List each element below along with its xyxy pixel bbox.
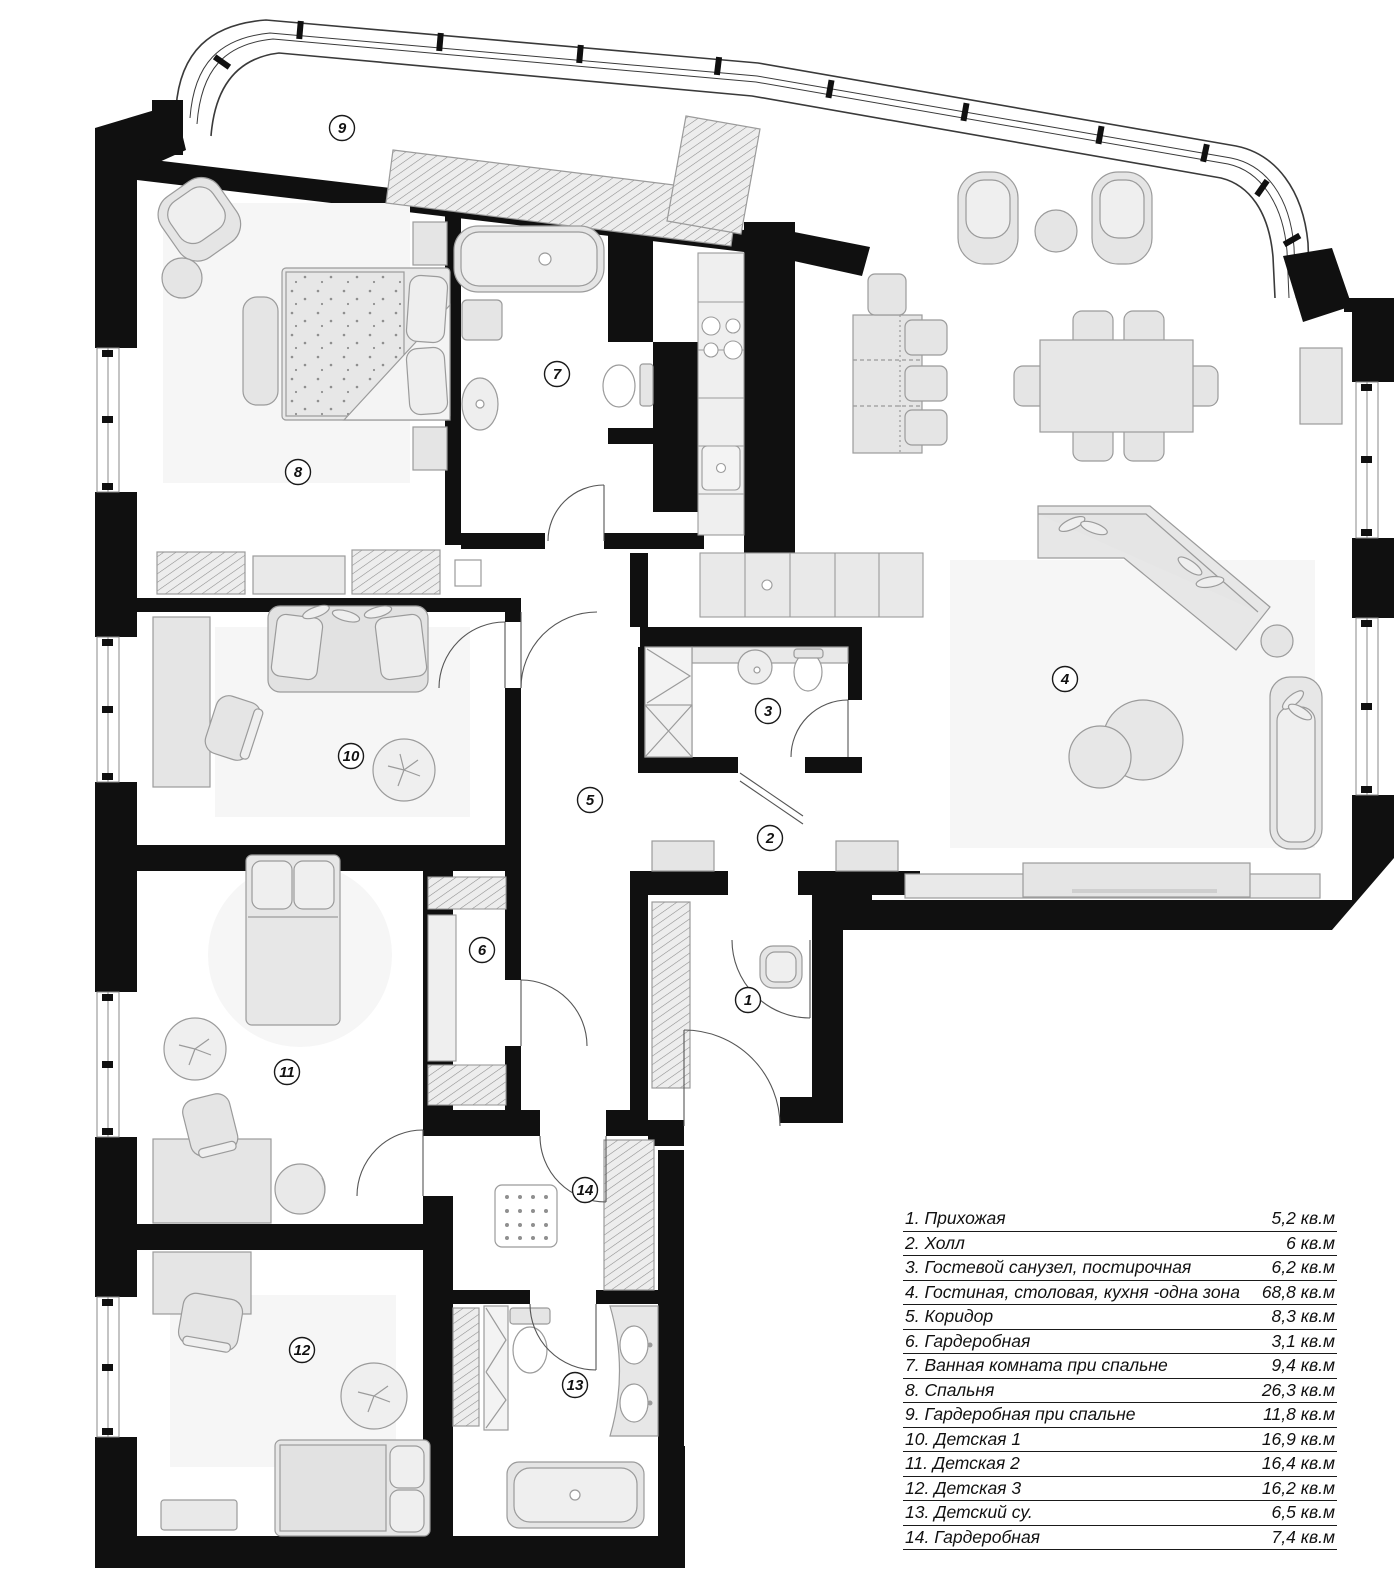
- legend-room-area: 26,3 кв.м: [1262, 1379, 1335, 1401]
- room3-fixtures: [645, 647, 848, 757]
- pillow-icon: [270, 613, 323, 680]
- legend-row: 7. Ванная комната при спальне9,4 кв.м: [903, 1354, 1337, 1379]
- bar-stool-icon: [905, 320, 947, 355]
- room-number-label: 11: [279, 1064, 295, 1081]
- pillow-icon: [390, 1446, 424, 1488]
- pillow-icon: [252, 861, 292, 909]
- wardrobe-icon: [157, 552, 245, 594]
- hall-cabinet-icon: [652, 841, 714, 871]
- room-number-label: 13: [567, 1377, 584, 1394]
- toilet-icon: [794, 653, 822, 691]
- hall-cabinet-icon: [836, 841, 898, 871]
- dotted-rug-icon: [495, 1185, 557, 1247]
- sink-icon: [620, 1384, 648, 1422]
- legend-room-name: 13. Детский су.: [905, 1501, 1033, 1523]
- room-number-badge: 5: [578, 788, 603, 813]
- room-number-badge: 13: [563, 1373, 588, 1398]
- legend-room-name: 10. Детская 1: [905, 1428, 1021, 1450]
- legend-room-area: 6 кв.м: [1286, 1232, 1335, 1254]
- legend-room-name: 5. Коридор: [905, 1305, 993, 1327]
- room-number-label: 9: [338, 120, 347, 137]
- legend-room-name: 2. Холл: [905, 1232, 965, 1254]
- floor-plan-page: 1234567891011121314 1. Прихожая5,2 кв.м2…: [0, 0, 1400, 1592]
- legend-room-area: 6,2 кв.м: [1272, 1256, 1335, 1278]
- side-table-icon: [1261, 625, 1293, 657]
- legend-row: 5. Коридор8,3 кв.м: [903, 1305, 1337, 1330]
- wardrobe-icon: [428, 877, 506, 909]
- dining-table-icon: [1040, 340, 1193, 432]
- legend-room-area: 5,2 кв.м: [1272, 1207, 1335, 1229]
- legend-room-name: 12. Детская 3: [905, 1477, 1021, 1499]
- legend-row: 4. Гостиная, столовая, кухня -одна зона6…: [903, 1281, 1337, 1306]
- room-number-badge: 11: [275, 1060, 300, 1085]
- wardrobe-corner-icon: [667, 116, 760, 234]
- room-number-badge: 6: [470, 938, 495, 963]
- sink-icon: [620, 1326, 648, 1364]
- kitchen-counter-icon: [698, 253, 744, 535]
- coffee-table-icon: [1035, 210, 1077, 252]
- legend-room-area: 16,2 кв.м: [1262, 1477, 1335, 1499]
- legend-room-area: 6,5 кв.м: [1272, 1501, 1335, 1523]
- legend-row: 11. Детская 216,4 кв.м: [903, 1452, 1337, 1477]
- room-number-badge: 3: [756, 699, 781, 724]
- wc-sink-icon: [738, 650, 772, 684]
- room-number-label: 5: [586, 792, 595, 809]
- legend-row: 14. Гардеробная7,4 кв.м: [903, 1526, 1337, 1551]
- legend-room-area: 16,4 кв.м: [1262, 1452, 1335, 1474]
- legend: 1. Прихожая5,2 кв.м2. Холл6 кв.м3. Госте…: [903, 1207, 1337, 1550]
- room-number-badge: 4: [1053, 667, 1078, 692]
- legend-room-name: 6. Гардеробная: [905, 1330, 1030, 1352]
- pillow-icon: [294, 861, 334, 909]
- wall-facade-right-anchor: [1283, 248, 1352, 322]
- legend-room-area: 16,9 кв.м: [1262, 1428, 1335, 1450]
- wall-11-12: [137, 1224, 453, 1250]
- legend-room-name: 14. Гардеробная: [905, 1526, 1040, 1548]
- legend-room-area: 3,1 кв.м: [1272, 1330, 1335, 1352]
- window-right-2: [1356, 618, 1378, 795]
- laundry-counter-icon: [700, 553, 923, 617]
- cooktop-icon: [702, 317, 720, 335]
- desk-chair-icon: [176, 1291, 244, 1354]
- room-number-label: 12: [294, 1342, 311, 1359]
- legend-room-name: 8. Спальня: [905, 1379, 994, 1401]
- legend-row: 6. Гардеробная3,1 кв.м: [903, 1330, 1337, 1355]
- nightstand-icon: [413, 427, 447, 470]
- legend-room-name: 9. Гардеробная при спальне: [905, 1403, 1135, 1425]
- legend-room-name: 4. Гостиная, столовая, кухня -одна зона: [905, 1281, 1240, 1303]
- window-left-1: [97, 348, 119, 492]
- room1-furniture: [652, 902, 802, 1088]
- wardrobe-icon: [604, 1140, 654, 1290]
- room-number-label: 7: [553, 366, 562, 383]
- bar-stool-icon: [905, 366, 947, 401]
- toilet-icon: [513, 1327, 547, 1373]
- cabinet-icon: [1300, 348, 1342, 424]
- room-number-badge: 8: [286, 460, 311, 485]
- room-number-badge: 9: [330, 116, 355, 141]
- room-number-label: 3: [764, 703, 773, 720]
- wall-kitchen-east: [744, 222, 795, 553]
- bed-blanket: [280, 1445, 386, 1531]
- room-number-label: 6: [478, 942, 487, 959]
- room-number-badge: 12: [290, 1338, 315, 1363]
- lounge-armchair-icon: [958, 172, 1018, 264]
- legend-room-name: 7. Ванная комната при спальне: [905, 1354, 1168, 1376]
- legend-room-area: 68,8 кв.м: [1262, 1281, 1335, 1303]
- room14-furniture: [495, 1140, 654, 1290]
- wall-room3-top: [640, 627, 862, 647]
- door-bath7: [548, 485, 604, 541]
- legend-row: 3. Гостевой санузел, постирочная6,2 кв.м: [903, 1256, 1337, 1281]
- room-number-badge: 1: [736, 988, 761, 1013]
- room-number-label: 10: [343, 748, 360, 765]
- legend-row: 2. Холл6 кв.м: [903, 1232, 1337, 1257]
- room-number-badge: 10: [339, 744, 364, 769]
- door-room11: [357, 1130, 423, 1196]
- side-table-icon: [162, 258, 202, 298]
- legend-row: 1. Прихожая5,2 кв.м: [903, 1207, 1337, 1232]
- room-number-label: 4: [1060, 671, 1070, 688]
- bench-icon: [243, 297, 278, 405]
- legend-row: 8. Спальня26,3 кв.м: [903, 1379, 1337, 1404]
- dresser-icon: [253, 556, 345, 594]
- room-number-label: 8: [294, 464, 303, 481]
- legend-row: 12. Детская 316,2 кв.м: [903, 1477, 1337, 1502]
- pillow-icon: [406, 347, 449, 415]
- lounge-armchair-icon: [1092, 172, 1152, 264]
- pillow-icon: [374, 613, 427, 680]
- window-left-4: [97, 1297, 119, 1437]
- shelf-column-icon: [428, 915, 456, 1061]
- bar-stool-icon: [868, 274, 906, 315]
- toilet-icon: [603, 365, 635, 407]
- legend-room-area: 7,4 кв.м: [1272, 1526, 1335, 1548]
- nightstand-icon: [413, 222, 447, 265]
- cabinet-icon: [462, 300, 502, 340]
- pillow-icon: [390, 1490, 424, 1532]
- wall-top-left-block: [152, 100, 183, 155]
- bar-stool-icon: [905, 410, 947, 445]
- legend-room-name: 1. Прихожая: [905, 1207, 1006, 1229]
- room-number-badge: 2: [758, 826, 783, 851]
- legend-room-area: 8,3 кв.м: [1272, 1305, 1335, 1327]
- desk-icon: [153, 617, 210, 787]
- legend-room-name: 3. Гостевой санузел, постирочная: [905, 1256, 1191, 1278]
- window-right-1: [1356, 382, 1378, 538]
- window-left-3: [97, 992, 119, 1137]
- wardrobe-icon: [428, 1065, 506, 1105]
- room13-fixtures: [453, 1306, 658, 1528]
- room-number-label: 2: [765, 830, 775, 847]
- door-room3-east: [791, 700, 848, 757]
- window-left-2: [97, 637, 119, 782]
- pouf-icon: [1069, 726, 1131, 788]
- bench-icon: [161, 1500, 237, 1530]
- room-number-badge: 7: [545, 362, 570, 387]
- pillow-icon: [406, 275, 449, 343]
- door-corridor: [521, 612, 597, 688]
- stool-icon: [455, 560, 481, 586]
- legend-room-area: 9,4 кв.м: [1272, 1354, 1335, 1376]
- legend-row: 9. Гардеробная при спальне11,8 кв.м: [903, 1403, 1337, 1428]
- door-room3-south: [740, 773, 803, 824]
- legend-row: 10. Детская 116,9 кв.м: [903, 1428, 1337, 1453]
- room-number-label: 14: [577, 1182, 594, 1199]
- legend-room-area: 11,8 кв.м: [1263, 1403, 1335, 1425]
- door-entry: [684, 1030, 780, 1126]
- stool-icon: [275, 1164, 325, 1214]
- chaise-icon: [1270, 677, 1322, 849]
- door-room6: [521, 980, 587, 1046]
- closet-icon: [453, 1308, 479, 1426]
- room-number-badge: 14: [573, 1178, 598, 1203]
- room-number-label: 1: [744, 992, 752, 1009]
- legend-room-name: 11. Детская 2: [905, 1452, 1020, 1474]
- wardrobe-icon: [352, 550, 440, 594]
- legend-row: 13. Детский су.6,5 кв.м: [903, 1501, 1337, 1526]
